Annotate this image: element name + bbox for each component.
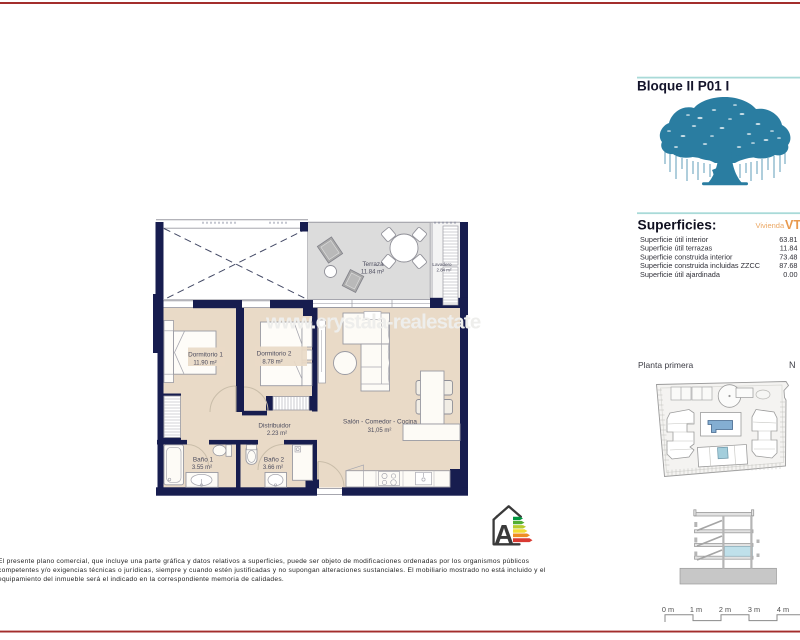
svg-text:Terraza: Terraza [362,261,384,268]
svg-text:Vivienda: Vivienda [756,221,785,230]
svg-text:Baño 2: Baño 2 [264,457,285,464]
svg-text:63.81: 63.81 [779,235,797,244]
svg-text:A: A [494,520,514,550]
svg-text:Superficie útil terrazas: Superficie útil terrazas [640,244,713,253]
svg-text:31,05 m²: 31,05 m² [368,428,392,434]
svg-text:Superficie construida incluida: Superficie construida incluidas ZZCC [640,261,760,270]
svg-text:Superficie útil ajardinada: Superficie útil ajardinada [640,270,721,279]
svg-text:2 m: 2 m [719,605,731,614]
svg-text:VT0: VT0 [785,218,800,232]
svg-text:Bloque II P01 I: Bloque II P01 I [637,79,729,94]
svg-text:Dormitorio 2: Dormitorio 2 [257,351,292,358]
svg-text:11.84 m²: 11.84 m² [361,270,384,276]
svg-text:Superficie útil interior: Superficie útil interior [640,235,709,244]
svg-text:Salón - Comedor - Cocina: Salón - Comedor - Cocina [343,419,417,426]
svg-text:N: N [789,360,796,370]
svg-text:3.66 m²: 3.66 m² [263,465,283,471]
svg-text:Distribuidor: Distribuidor [258,423,291,430]
svg-text:2.84 m²: 2.84 m² [437,268,452,273]
svg-text:11.84: 11.84 [780,244,798,253]
svg-text:Baño 1: Baño 1 [193,457,214,464]
svg-text:0.00: 0.00 [783,270,797,279]
svg-text:87.68: 87.68 [779,261,797,270]
svg-text:Superficie construida interior: Superficie construida interior [640,252,733,261]
svg-text:4 m: 4 m [777,605,789,614]
svg-text:8.78 m²: 8.78 m² [262,360,282,366]
svg-text:Superficies:: Superficies: [638,217,717,232]
svg-text:3 m: 3 m [748,605,760,614]
svg-text:Lavadero: Lavadero [432,262,452,267]
svg-text:73.48: 73.48 [779,252,797,261]
svg-text:Planta primera: Planta primera [638,360,694,370]
svg-text:0 m: 0 m [662,605,674,614]
svg-text:Dormitorio 1: Dormitorio 1 [188,352,223,359]
svg-text:1 m: 1 m [690,605,702,614]
svg-text:2.23 m²: 2.23 m² [267,431,287,437]
svg-text:11.90 m²: 11.90 m² [193,361,216,367]
svg-text:www.crystala-realestate: www.crystala-realestate [265,311,481,334]
svg-text:3.55 m²: 3.55 m² [192,465,212,471]
